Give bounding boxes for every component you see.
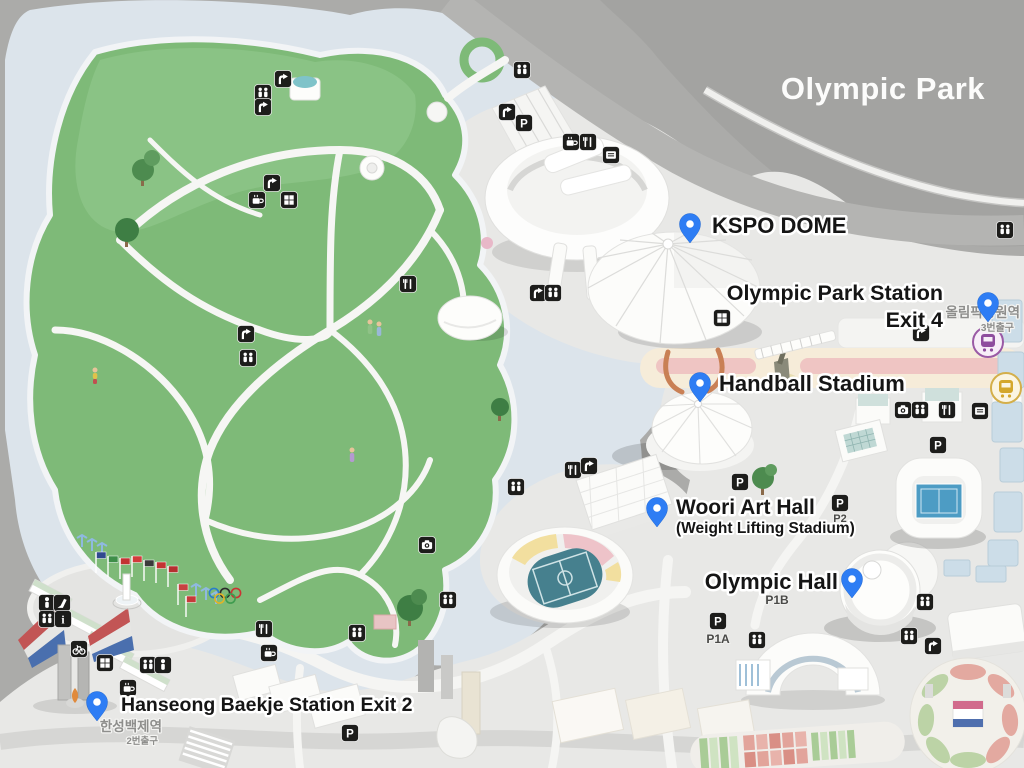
rose-garden <box>910 658 1024 768</box>
restroom-icon <box>545 285 562 302</box>
restroom-icon <box>140 657 157 674</box>
arrow-icon <box>275 71 292 88</box>
svg-text:Handball Stadium: Handball Stadium <box>719 371 905 396</box>
bike-icon <box>71 641 88 658</box>
parking-label-p1b: P1B <box>765 593 789 607</box>
svg-text:P: P <box>714 617 722 629</box>
park-small-dome <box>427 102 447 122</box>
cafe-icon <box>249 192 266 209</box>
restroom-icon <box>749 632 766 649</box>
cafe-icon <box>261 645 278 662</box>
arrow-icon <box>264 175 281 192</box>
svg-text:Woori Art Hall: Woori Art Hall <box>676 496 815 519</box>
park-pool-pavilion <box>290 76 320 100</box>
restroom-icon <box>240 350 257 367</box>
svg-text:Exit 4: Exit 4 <box>886 308 943 332</box>
svg-text:(Weight Lifting Stadium): (Weight Lifting Stadium) <box>676 520 855 537</box>
park-small-hut <box>360 156 384 180</box>
camera-icon <box>895 402 912 419</box>
slide-icon <box>54 595 71 612</box>
parking-icon: P <box>832 495 849 512</box>
restroom-icon <box>440 592 457 609</box>
restroom-icon <box>508 479 525 496</box>
arrow-icon <box>581 458 598 475</box>
parking-icon: P <box>516 115 533 132</box>
svg-text:P: P <box>836 499 844 511</box>
arrow-icon <box>255 99 272 116</box>
locker-icon <box>281 192 298 209</box>
camera-icon <box>419 537 436 554</box>
svg-text:KSPO DOME: KSPO DOME <box>712 213 846 238</box>
restroom-icon <box>349 625 366 642</box>
svg-text:P: P <box>346 729 354 741</box>
info-icon: i <box>55 611 72 628</box>
person-icon <box>155 657 172 674</box>
food-icon <box>565 462 582 479</box>
ticket-icon <box>603 147 620 164</box>
svg-text:2번출구: 2번출구 <box>126 735 158 747</box>
restroom-icon <box>912 402 929 419</box>
parking-icon: P <box>732 474 749 491</box>
arrow-icon <box>238 326 255 343</box>
food-icon <box>256 621 273 638</box>
pink-kiosk <box>374 615 396 629</box>
page-title: Olympic Park <box>781 71 985 106</box>
parking-icon: P <box>342 725 359 742</box>
svg-text:P: P <box>736 478 744 490</box>
restroom-icon <box>997 222 1014 239</box>
food-icon <box>580 134 597 151</box>
svg-text:한성백제역: 한성백제역 <box>100 718 162 734</box>
east-building <box>947 603 1024 661</box>
parking-label-p1a: P1A <box>706 632 730 646</box>
cafe-icon <box>563 134 580 151</box>
locker-icon <box>714 310 731 327</box>
restroom-icon <box>39 611 56 628</box>
restroom-icon <box>901 628 918 645</box>
ticket-icon <box>972 403 989 420</box>
blossom-tree <box>481 237 493 249</box>
svg-text:P: P <box>934 441 942 453</box>
restroom-icon <box>514 62 531 79</box>
svg-text:P: P <box>520 119 528 131</box>
person-icon <box>39 595 56 612</box>
svg-text:3번출구: 3번출구 <box>981 321 1014 334</box>
olympic-park-map: PPPPPPi P2 P1B P1A 올림픽공원역 3번출구 한성백제역 2번출… <box>0 0 1024 768</box>
metro-line9-icon <box>991 373 1021 403</box>
svg-text:Hanseong Baekje Station Exit 2: Hanseong Baekje Station Exit 2 <box>121 694 413 716</box>
restroom-icon <box>917 594 934 611</box>
food-icon <box>400 276 417 293</box>
parking-icon: P <box>930 437 947 454</box>
arrow-icon <box>499 104 516 121</box>
svg-text:Olympic Hall: Olympic Hall <box>705 569 838 594</box>
locker-icon <box>97 655 114 672</box>
tennis-stadium-building <box>890 458 986 549</box>
parking-icon: P <box>710 613 727 630</box>
arrow-icon <box>925 638 942 655</box>
food-icon <box>939 402 956 419</box>
arrow-icon <box>530 285 547 302</box>
svg-text:Olympic Park Station: Olympic Park Station <box>727 281 943 305</box>
